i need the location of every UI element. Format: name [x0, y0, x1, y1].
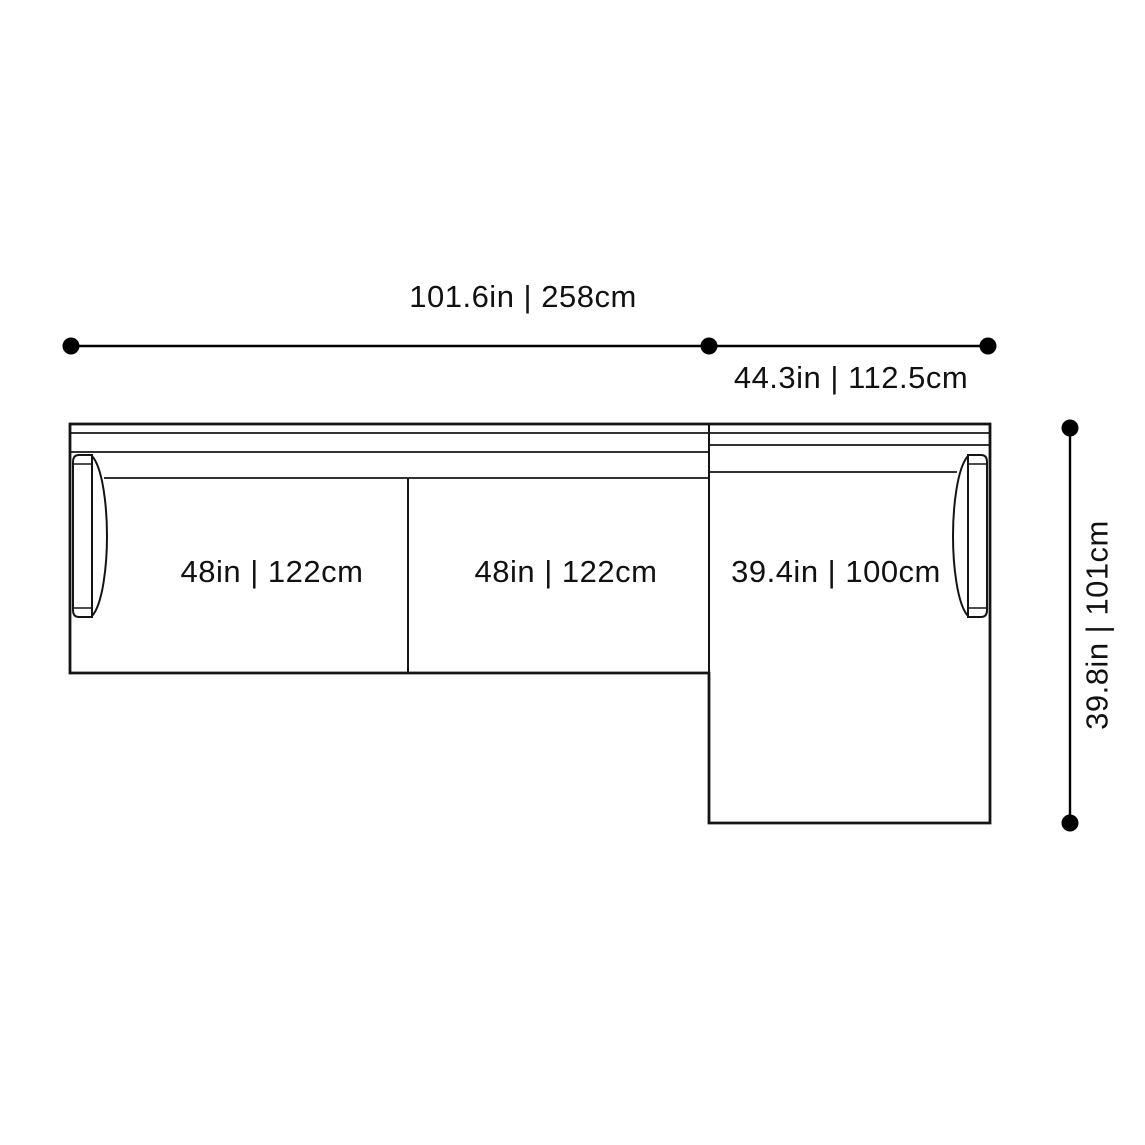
sofa-outline [70, 424, 990, 823]
left-armrest-arc [92, 456, 107, 616]
chaise-inner-width-label: 39.4in | 100cm [731, 554, 941, 589]
right-armrest-body [968, 455, 987, 617]
section-labels: 48in | 122cm 48in | 122cm 39.4in | 100cm [181, 554, 941, 589]
left-armrest-body [73, 455, 92, 617]
seat1-width-label: 48in | 122cm [181, 554, 364, 589]
dimension-endpoint-dot [1062, 420, 1079, 437]
total-width-label: 101.6in | 258cm [409, 279, 637, 314]
depth-label: 39.8in | 101cm [1080, 520, 1115, 730]
seat2-width-label: 48in | 122cm [475, 554, 658, 589]
right-armrest-arc [953, 456, 968, 616]
right-armrest [953, 455, 987, 617]
dimension-endpoint-dot [980, 338, 997, 355]
depth-dimension: 39.8in | 101cm [1062, 420, 1115, 832]
dimension-endpoint-dot [701, 338, 718, 355]
sofa-body-outline [70, 424, 990, 823]
total-width-dimension: 101.6in | 258cm 44.3in | 112.5cm [63, 279, 997, 395]
chaise-width-label: 44.3in | 112.5cm [734, 360, 968, 395]
dimension-endpoint-dot [63, 338, 80, 355]
sofa-dimension-diagram: 101.6in | 258cm 44.3in | 112.5cm 39.8in … [0, 0, 1145, 1145]
dimension-endpoint-dot [1062, 815, 1079, 832]
sofa-dimension-diagram-page: 101.6in | 258cm 44.3in | 112.5cm 39.8in … [0, 0, 1145, 1145]
left-armrest [73, 455, 107, 617]
